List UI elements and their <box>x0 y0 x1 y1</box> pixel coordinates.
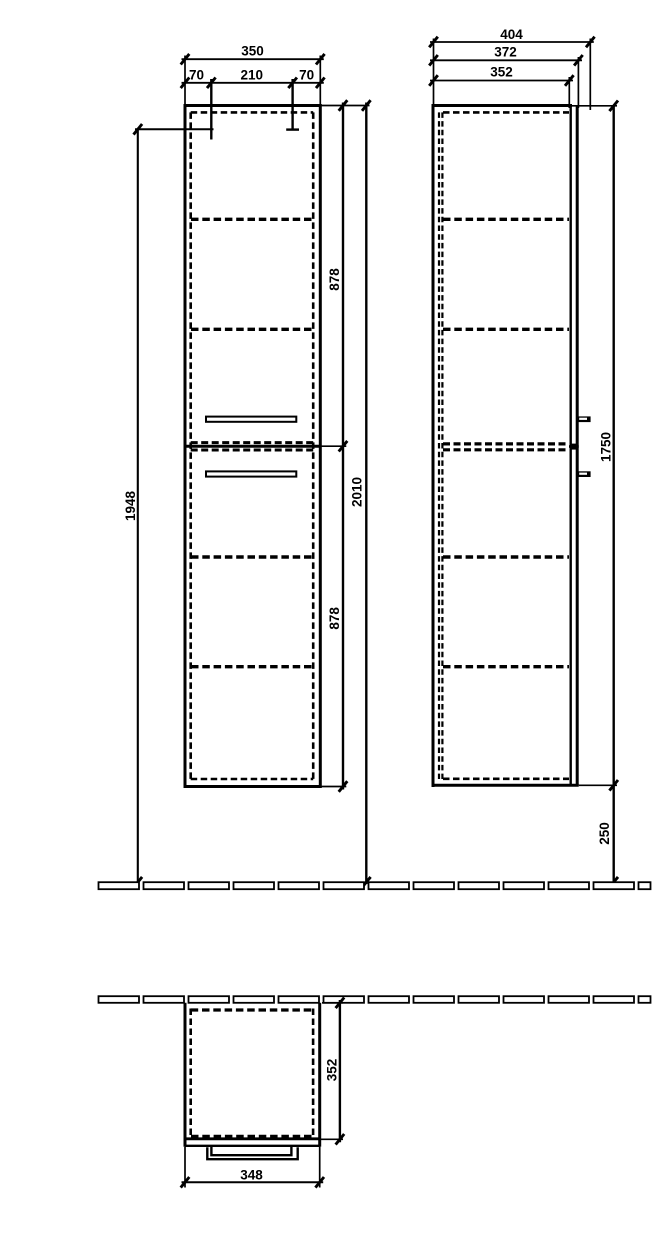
svg-text:352: 352 <box>490 65 513 80</box>
svg-text:210: 210 <box>241 67 264 82</box>
svg-text:1948: 1948 <box>123 490 138 521</box>
svg-text:70: 70 <box>299 67 314 82</box>
svg-text:878: 878 <box>327 268 342 291</box>
svg-text:878: 878 <box>327 607 342 630</box>
svg-text:372: 372 <box>494 44 517 59</box>
svg-text:352: 352 <box>325 1059 340 1082</box>
svg-text:1750: 1750 <box>599 432 614 462</box>
svg-text:348: 348 <box>240 1168 263 1183</box>
svg-text:70: 70 <box>189 67 204 82</box>
svg-text:2010: 2010 <box>349 477 364 507</box>
svg-text:404: 404 <box>500 27 523 42</box>
svg-text:250: 250 <box>597 822 612 845</box>
svg-text:350: 350 <box>241 44 264 59</box>
